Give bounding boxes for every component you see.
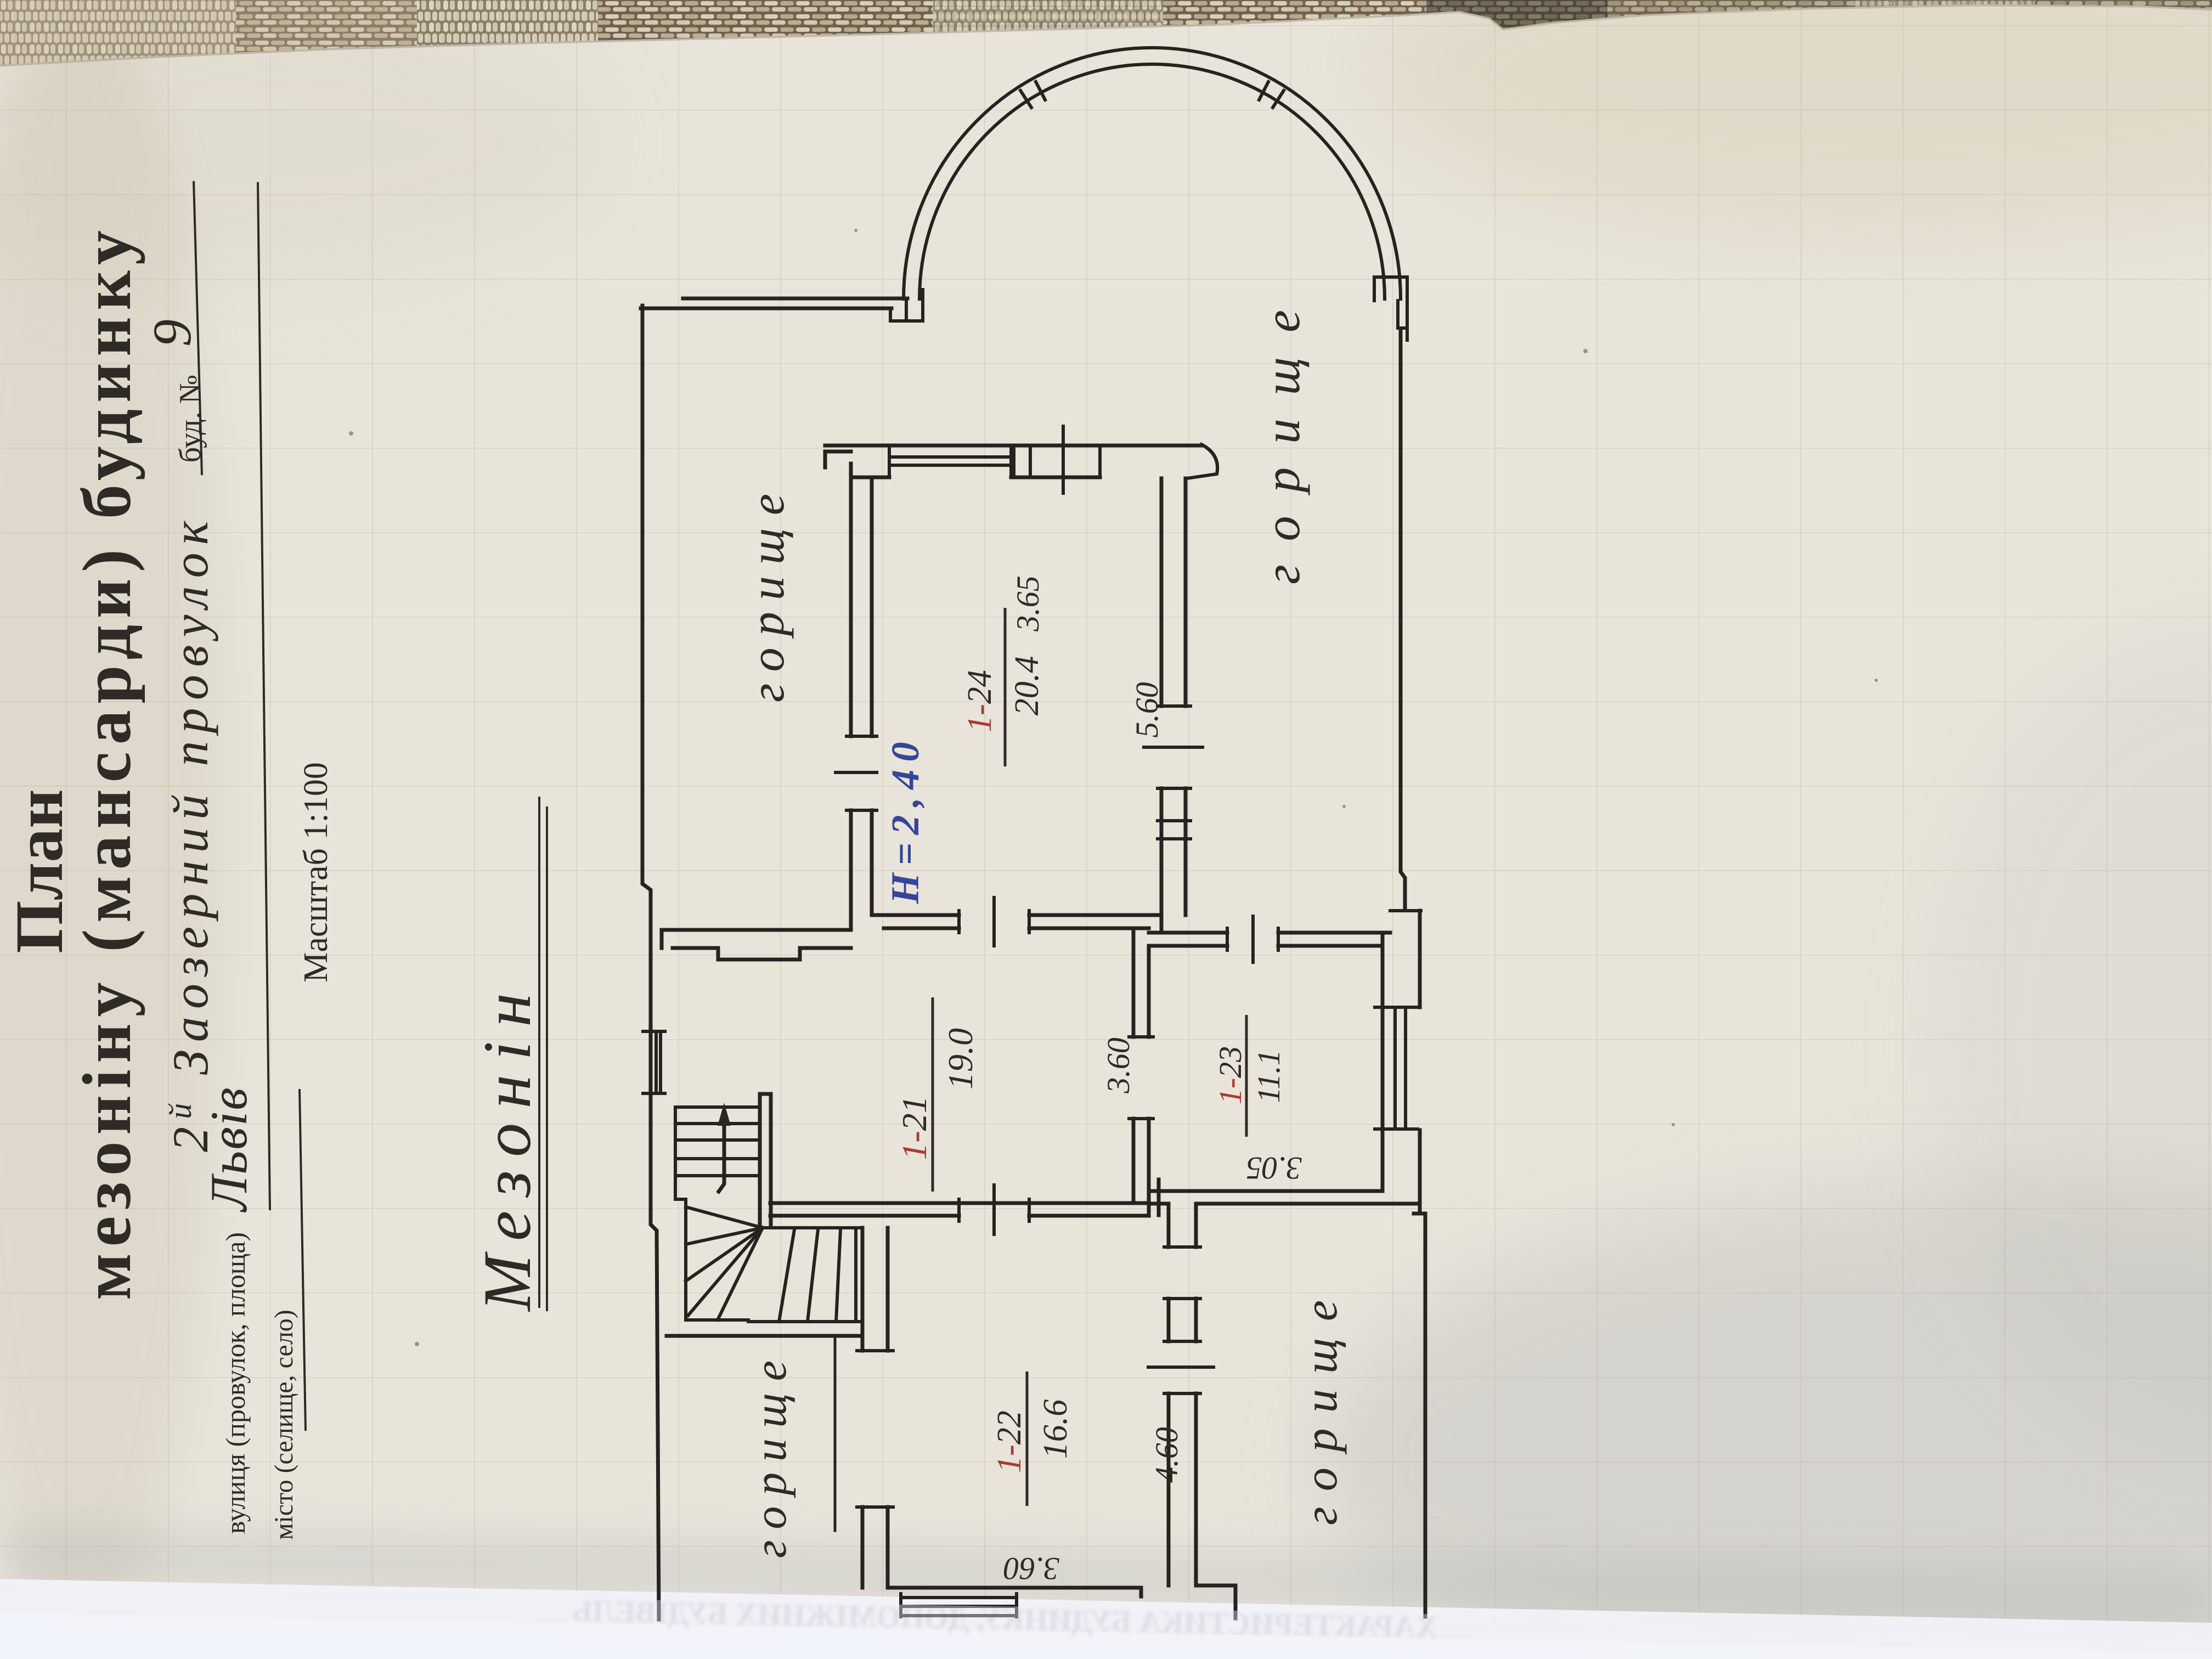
svg-text:19.0: 19.0 [941, 1028, 980, 1090]
svg-text:1-23: 1-23 [1212, 1046, 1248, 1104]
svg-text:3.05: 3.05 [1246, 1150, 1302, 1186]
svg-text:Масштаб 1:100: Масштаб 1:100 [297, 762, 335, 983]
svg-text:Львів: Львів [200, 1088, 258, 1213]
svg-text:4.60: 4.60 [1149, 1427, 1184, 1483]
svg-text:3.65: 3.65 [1010, 575, 1046, 632]
svg-text:буд. №: буд. № [173, 375, 207, 463]
svg-text:11.1: 11.1 [1251, 1049, 1286, 1103]
svg-text:3.60: 3.60 [1101, 1037, 1136, 1094]
svg-text:9: 9 [142, 319, 202, 347]
svg-text:1-24: 1-24 [961, 670, 998, 732]
svg-text:1-21: 1-21 [895, 1096, 934, 1160]
svg-text:5.60: 5.60 [1129, 682, 1165, 738]
svg-text:20.4: 20.4 [1008, 656, 1046, 716]
svg-text:місто (селище, село): місто (селище, село) [269, 1310, 298, 1540]
svg-text:16.6: 16.6 [1037, 1400, 1074, 1459]
svg-text:вулиця (провулок, площа): вулиця (провулок, площа) [220, 1232, 251, 1534]
svg-text:1-22: 1-22 [991, 1410, 1028, 1473]
svg-text:План: План [2, 789, 77, 953]
svg-text:3.60: 3.60 [1003, 1551, 1060, 1587]
